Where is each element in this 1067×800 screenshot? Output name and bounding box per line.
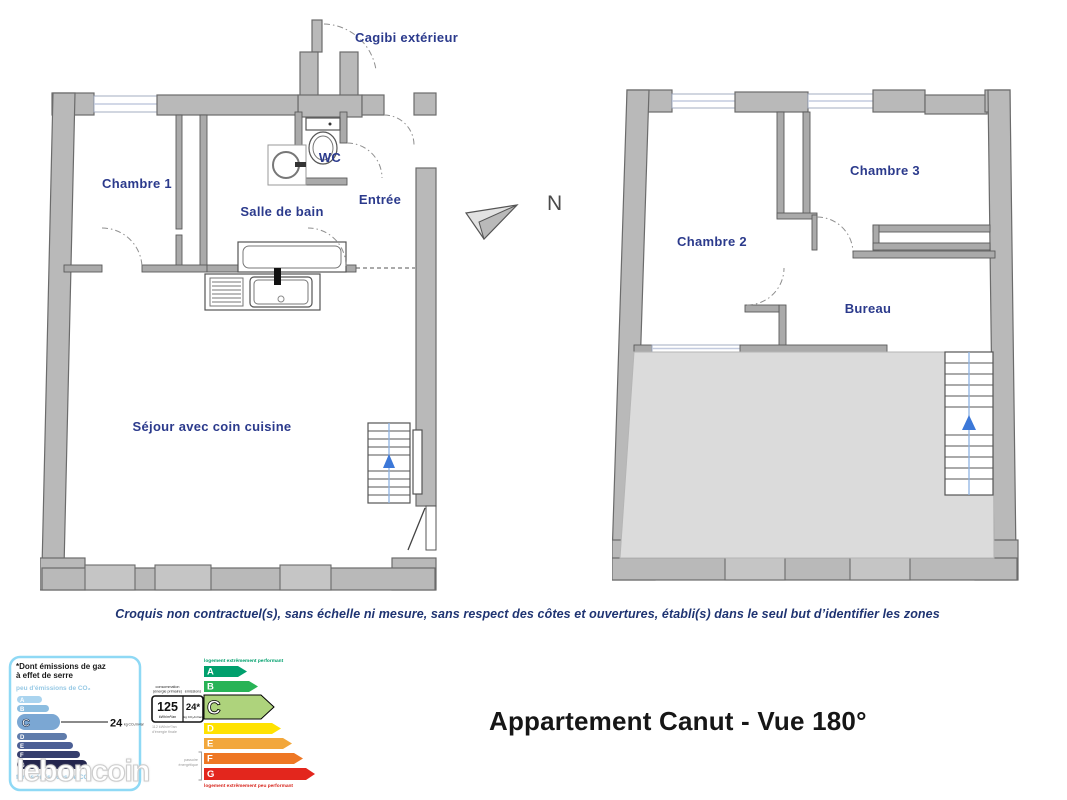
dpe-consumption-header2: (énergie primaire) (153, 690, 182, 694)
ges-value-unit: kg CO₂/m²/an (124, 723, 144, 727)
ges-value: 24 (110, 718, 123, 730)
window (672, 94, 735, 108)
kitchen-sink-icon (205, 268, 320, 310)
room-label-chambre3: Chambre 3 (850, 163, 920, 178)
dpe-letter-a: A (207, 667, 214, 678)
dpe-sieve-bracket (199, 752, 202, 780)
dpe-letter-b: B (207, 682, 214, 693)
dpe-letter-d: D (207, 724, 214, 735)
ges-scale-top: peu d'émissions de CO₂ (16, 685, 91, 692)
window (280, 565, 331, 590)
door-leaf (408, 508, 425, 550)
disclaimer-text: Croquis non contractuel(s), sans échelle… (0, 607, 1055, 621)
dpe-consumption-unit: kWh/m²/an (159, 715, 176, 719)
dpe-letter-g: G (207, 769, 214, 780)
room-label-chambre1: Chambre 1 (102, 176, 172, 191)
washing-machine-icon (268, 145, 306, 185)
ges-title-line1: *Dont émissions de gaz (16, 662, 106, 671)
chambre1-door-arc (102, 228, 142, 268)
ges-title-line2: à effet de serre (16, 671, 73, 680)
dpe-arrow-d (204, 723, 281, 734)
listing-line-levels: Entrée : RDC, Séjour : 1er étage (489, 796, 889, 800)
wc-room (295, 112, 382, 185)
dpe-arrow-g (204, 768, 315, 780)
dpe-letter-f: F (207, 754, 213, 765)
room-label-wc: WC (319, 150, 342, 165)
dpe-sieve-label2: énergétique (179, 763, 198, 767)
dpe-emissions-header: émissions (185, 690, 202, 694)
listing-text: Appartement Canut - Vue 180° Entrée : RD… (489, 646, 889, 800)
ground-floor-plan: Cagibi extérieur Chambre 1 WC Salle de b… (40, 18, 460, 600)
ges-bar-e (17, 742, 73, 749)
leboncoin-watermark: leboncoin (16, 753, 149, 789)
stairs-up (945, 352, 993, 495)
dpe-sieve-label1: passoire (184, 758, 198, 762)
dpe-emissions-value: 24* (186, 702, 201, 713)
wc-door-arc (347, 143, 382, 178)
room-label-bureau: Bureau (845, 301, 892, 316)
dpe-final-energy2: d'énergie finale (152, 730, 177, 734)
ges-letter-a: A (20, 698, 25, 704)
window (652, 345, 740, 352)
room-label-salle-de-bain: Salle de bain (240, 204, 323, 219)
dpe-letter-c: C (207, 698, 221, 719)
dpe-letter-e: E (207, 739, 213, 750)
north-label: N (547, 192, 562, 215)
ges-letter-b: B (20, 707, 25, 713)
dpe-final-energy1: 112 kWh/m²/an (152, 725, 177, 729)
room-label-cagibi: Cagibi extérieur (355, 30, 458, 45)
ges-letter-e: E (20, 744, 24, 750)
dpe-consumption-header1: consommation (156, 685, 180, 689)
dpe-arrow-f (204, 753, 303, 764)
bathtub-icon (238, 242, 346, 272)
window (155, 565, 211, 590)
listing-line-title: Appartement Canut - Vue 180° (489, 706, 889, 736)
compass: N (455, 175, 565, 250)
left-wall (42, 93, 75, 568)
ges-letter-c: C (22, 718, 30, 730)
chambre2-door-arc (747, 268, 784, 305)
window (850, 555, 910, 580)
chambre3-door-arc (817, 217, 853, 253)
entry-door-arc (384, 115, 414, 145)
bottom-wall (612, 558, 1017, 580)
dpe-consumption-value: 125 (157, 700, 178, 714)
dpe-bottom-label: logement extrêmement peu performant (204, 783, 293, 789)
window (808, 94, 873, 108)
dpe-top-label: logement extrêmement performant (204, 658, 284, 664)
room-label-entree: Entrée (359, 192, 401, 207)
window (85, 565, 135, 590)
window (725, 555, 785, 580)
window (94, 96, 157, 112)
ges-bar-d (17, 733, 67, 740)
dpe-emissions-unit: kg CO₂/m²/an (184, 715, 203, 719)
floorplan-image: Cagibi extérieur Chambre 1 WC Salle de b… (0, 0, 1067, 800)
dpe-diagram: logement extrêmement performant A B C D … (147, 650, 339, 798)
first-floor-plan: Chambre 2 Chambre 3 Bureau (612, 85, 1022, 585)
dpe-arrow-e (204, 738, 292, 749)
closet (873, 225, 990, 250)
ges-letter-d: D (20, 735, 25, 741)
void-over-sejour (620, 352, 994, 558)
room-label-sejour: Séjour avec coin cuisine (133, 419, 292, 434)
door-leaf (745, 305, 779, 312)
stairs-handrail (413, 430, 422, 494)
room-label-chambre2: Chambre 2 (677, 234, 747, 249)
stairs-up (368, 423, 422, 503)
